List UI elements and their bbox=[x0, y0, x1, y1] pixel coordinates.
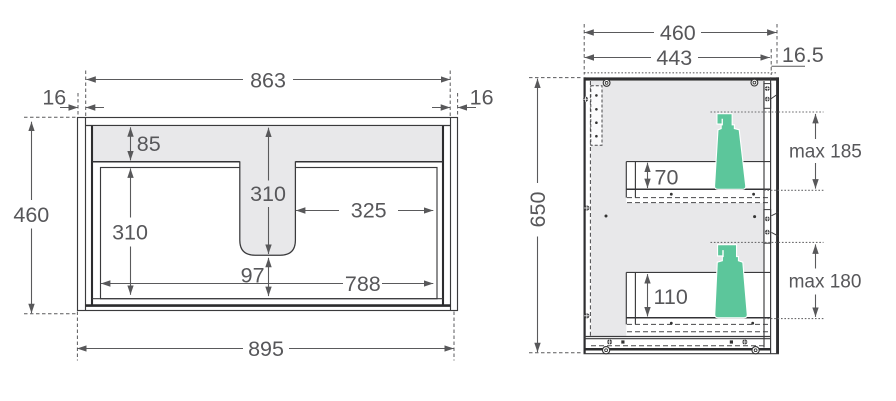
svg-text:110: 110 bbox=[654, 285, 688, 309]
svg-text:650: 650 bbox=[526, 192, 550, 228]
svg-text:325: 325 bbox=[351, 198, 387, 222]
svg-text:863: 863 bbox=[250, 69, 286, 93]
svg-text:max 180: max 180 bbox=[789, 271, 862, 292]
svg-text:895: 895 bbox=[248, 337, 284, 361]
svg-text:70: 70 bbox=[655, 165, 679, 189]
svg-text:85: 85 bbox=[137, 132, 161, 156]
svg-text:16.5: 16.5 bbox=[782, 43, 824, 67]
svg-text:443: 443 bbox=[656, 46, 692, 70]
svg-text:max 185: max 185 bbox=[789, 141, 862, 162]
svg-text:310: 310 bbox=[250, 182, 286, 206]
svg-text:97: 97 bbox=[241, 264, 265, 288]
svg-text:788: 788 bbox=[345, 272, 381, 296]
svg-text:16: 16 bbox=[42, 85, 66, 109]
svg-text:310: 310 bbox=[112, 220, 148, 244]
svg-text:460: 460 bbox=[13, 203, 49, 227]
svg-text:460: 460 bbox=[660, 21, 696, 45]
svg-text:16: 16 bbox=[470, 85, 494, 109]
